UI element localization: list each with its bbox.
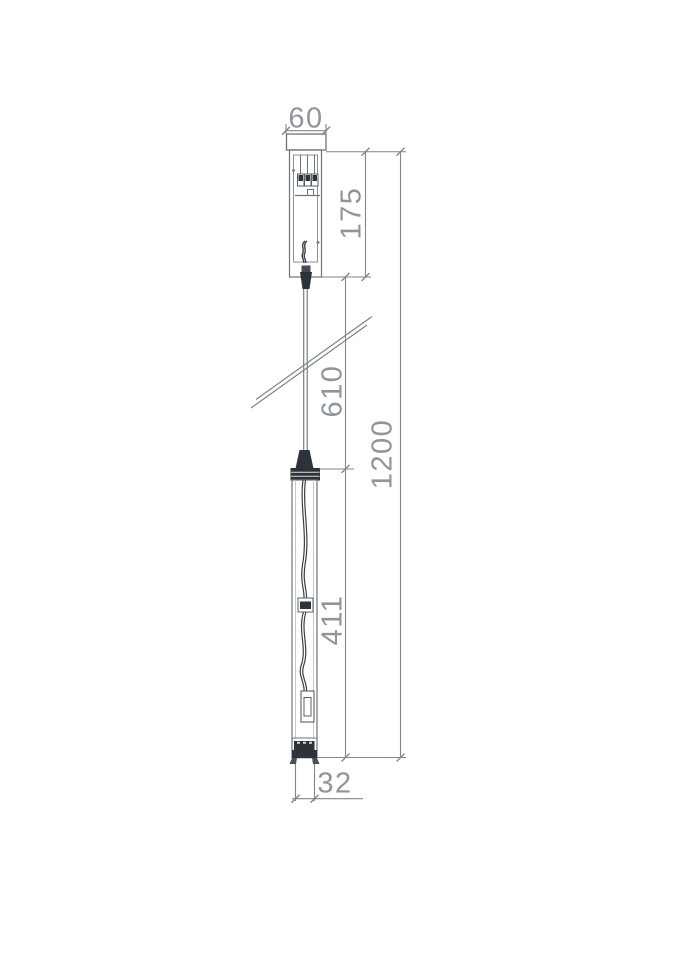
lamp-top-cap xyxy=(291,469,320,481)
canopy-box xyxy=(290,150,322,277)
canopy-internal-wire xyxy=(302,241,307,263)
dim-cable-and-fixture xyxy=(342,273,350,762)
wire-connector xyxy=(298,598,313,612)
dim-label-tube-diameter: 32 xyxy=(317,770,352,799)
cord-grip xyxy=(300,266,312,290)
led-driver xyxy=(301,691,314,722)
ceiling-plate xyxy=(287,134,327,150)
dim-label-fixture-length: 411 xyxy=(319,595,348,646)
pendant-lamp-drawing xyxy=(0,0,686,970)
terminal-block xyxy=(298,155,319,186)
dim-label-canopy-height: 175 xyxy=(338,187,367,240)
dim-label-total-height: 1200 xyxy=(369,419,398,490)
dim-label-cable-length: 610 xyxy=(319,365,348,418)
lamp-strain-relief-cone xyxy=(296,450,314,469)
cable-break-symbol xyxy=(251,317,372,409)
mounting-bracket xyxy=(295,190,320,196)
dimension-drawing-canvas: 60 175 610 1200 411 32 xyxy=(0,0,686,970)
dim-label-canopy-width: 60 xyxy=(288,105,323,134)
